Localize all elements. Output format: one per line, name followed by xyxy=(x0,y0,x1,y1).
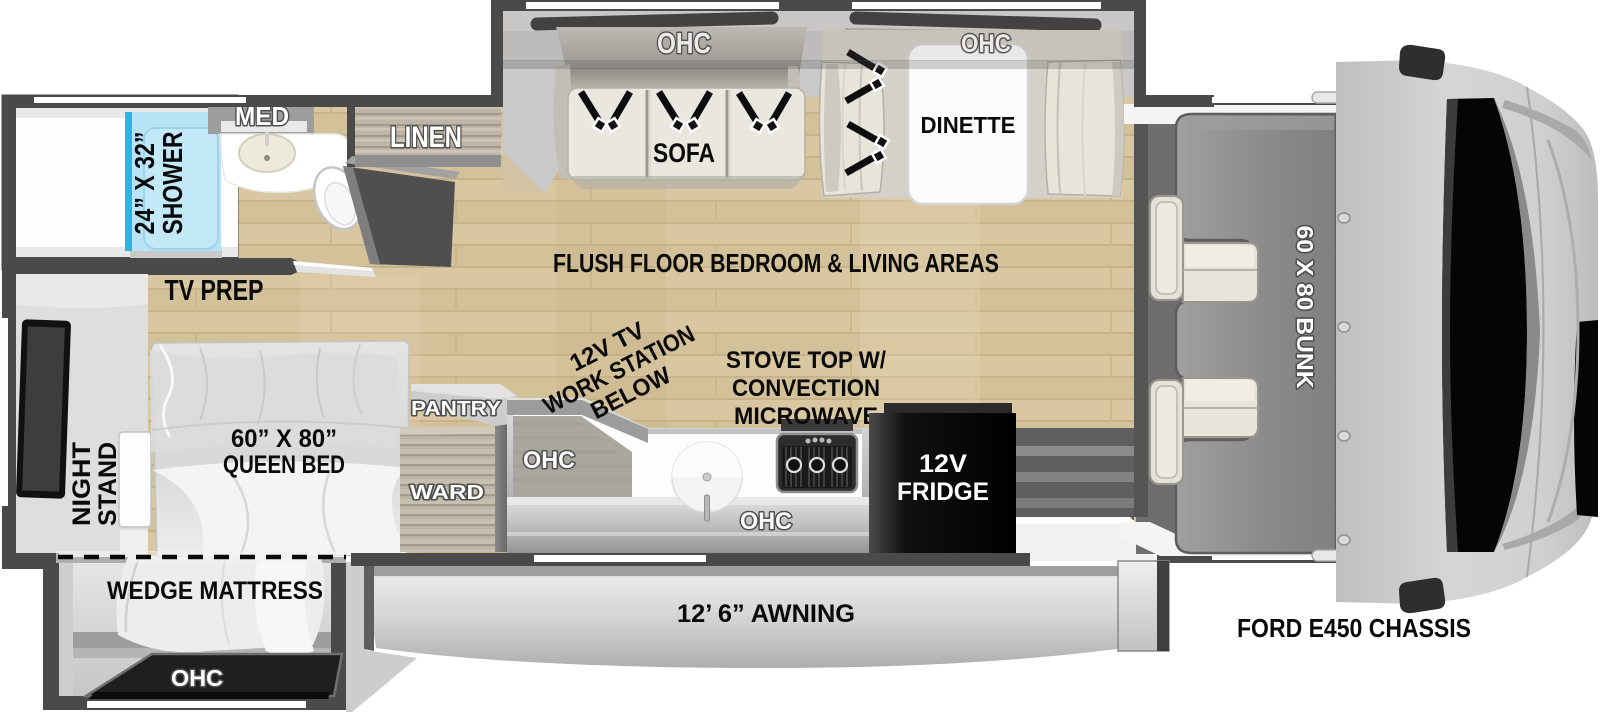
svg-text:MICROWAVE: MICROWAVE xyxy=(734,403,878,430)
svg-text:60” X 80”: 60” X 80” xyxy=(231,425,337,453)
svg-text:OHC: OHC xyxy=(740,508,792,535)
svg-text:FRIDGE: FRIDGE xyxy=(897,478,989,506)
svg-text:FORD E450 CHASSIS: FORD E450 CHASSIS xyxy=(1237,613,1471,643)
svg-text:TV PREP: TV PREP xyxy=(165,275,264,307)
svg-text:STOVE TOP W/: STOVE TOP W/ xyxy=(726,347,886,374)
svg-text:OHC: OHC xyxy=(171,665,223,691)
svg-text:SOFA: SOFA xyxy=(653,138,715,168)
svg-text:FLUSH FLOOR BEDROOM & LIVING A: FLUSH FLOOR BEDROOM & LIVING AREAS xyxy=(553,248,999,278)
svg-text:CONVECTION: CONVECTION xyxy=(732,375,880,402)
svg-text:LINEN: LINEN xyxy=(390,121,462,154)
svg-text:OHC: OHC xyxy=(523,447,575,474)
svg-text:STAND: STAND xyxy=(94,442,122,526)
svg-text:12V: 12V xyxy=(919,450,967,478)
svg-text:QUEEN BED: QUEEN BED xyxy=(223,451,345,479)
svg-text:PANTRY: PANTRY xyxy=(411,398,502,420)
svg-text:WEDGE MATTRESS: WEDGE MATTRESS xyxy=(107,577,323,605)
svg-text:24” X 32”: 24” X 32” xyxy=(129,132,160,235)
svg-text:60 X 80 BUNK: 60 X 80 BUNK xyxy=(1292,226,1318,389)
svg-text:SHOWER: SHOWER xyxy=(157,132,188,235)
svg-text:WARD: WARD xyxy=(410,482,484,504)
svg-text:12’ 6” AWNING: 12’ 6” AWNING xyxy=(677,600,855,628)
svg-text:NIGHT: NIGHT xyxy=(68,442,96,526)
svg-text:DINETTE: DINETTE xyxy=(921,112,1016,138)
